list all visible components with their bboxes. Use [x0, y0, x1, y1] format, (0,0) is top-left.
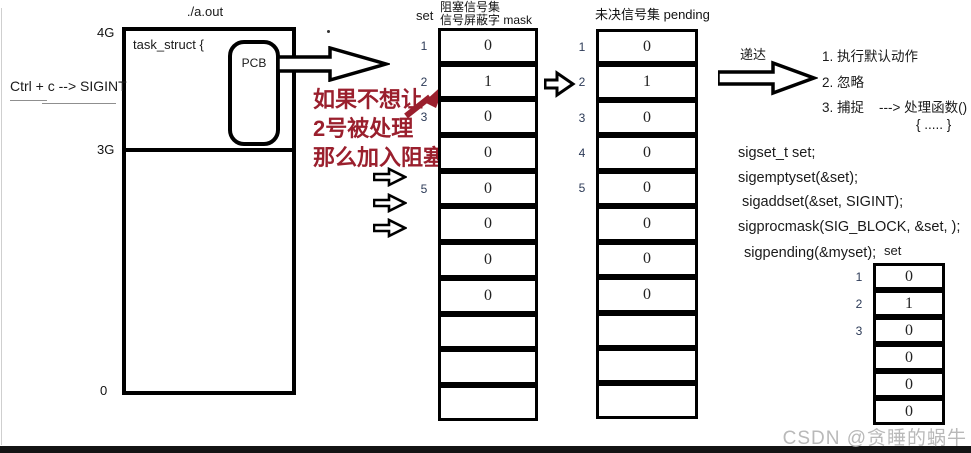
signal-source-note: Ctrl + c --> SIGINT — [10, 78, 127, 94]
signal-table-row: 10 — [845, 263, 945, 290]
page-border-line — [1, 8, 2, 445]
signal-table-row — [410, 314, 538, 350]
signal-table-row: 0 — [410, 278, 538, 314]
signal-bit-cell — [596, 383, 698, 418]
code-line-5: sigpending(&myset); — [744, 245, 876, 261]
signal-number-label — [410, 242, 438, 278]
signal-bit-cell: 0 — [438, 171, 538, 207]
signal-number-label — [410, 314, 438, 350]
underline-segment — [10, 100, 47, 101]
small-right-arrow-icon — [373, 193, 407, 213]
signal-number-label — [410, 385, 438, 421]
signal-table-row — [568, 348, 698, 383]
pending-signal-set-table: 1021304050000 — [568, 29, 698, 419]
signal-table-row: 0 — [568, 277, 698, 312]
signal-bit-cell — [438, 314, 538, 350]
signal-number-label — [845, 344, 873, 371]
signal-bit-cell: 0 — [438, 99, 538, 135]
signal-number-label — [410, 349, 438, 385]
signal-table-row: 0 — [845, 371, 945, 398]
mem-label-4g: 4G — [97, 25, 114, 40]
signal-table-row: 30 — [410, 99, 538, 135]
signal-table-row: 0 — [410, 206, 538, 242]
signal-bit-cell — [438, 385, 538, 421]
signal-table-row: 21 — [568, 64, 698, 99]
signal-number-label — [568, 206, 596, 241]
signal-bit-cell: 0 — [438, 242, 538, 278]
kernel-user-divider-line — [122, 148, 296, 152]
signal-number-label — [568, 277, 596, 312]
signal-bit-cell: 0 — [596, 29, 698, 64]
signal-number-label — [568, 242, 596, 277]
signal-bit-cell: 0 — [873, 317, 945, 344]
handler-body-text: { ..... } — [916, 117, 951, 132]
mask-set-label: set — [416, 8, 433, 23]
signal-bit-cell: 0 — [873, 344, 945, 371]
process-title: ./a.out — [150, 4, 260, 19]
signal-table-row — [410, 385, 538, 421]
pcb-to-mask-arrow-icon — [278, 46, 390, 82]
delivery-arrow-icon — [718, 60, 818, 96]
code-line-1: sigset_t set; — [738, 145, 815, 161]
signal-number-label: 4 — [568, 135, 596, 170]
code-line-3: sigaddset(&set, SIGINT); — [742, 194, 903, 210]
signal-table-row: 40 — [568, 135, 698, 170]
signal-table-row: 0 — [845, 344, 945, 371]
signal-bit-cell: 0 — [596, 206, 698, 241]
sigpending-result-table: 102130000 — [845, 263, 945, 425]
signal-number-label — [410, 278, 438, 314]
signal-number-label — [410, 135, 438, 171]
signal-bit-cell: 0 — [596, 242, 698, 277]
signal-number-label: 2 — [568, 64, 596, 99]
underline-segment — [42, 103, 116, 104]
signal-table-row — [568, 383, 698, 418]
signal-number-label — [568, 348, 596, 383]
signal-bit-cell: 0 — [596, 100, 698, 135]
mem-label-0: 0 — [100, 383, 107, 398]
signal-table-row: 30 — [845, 317, 945, 344]
signal-bit-cell: 1 — [596, 64, 698, 99]
signal-bit-cell: 1 — [438, 64, 538, 100]
mask-title-line2: 信号屏蔽字 mask — [440, 14, 532, 27]
signal-bit-cell: 0 — [596, 171, 698, 206]
signal-number-label — [410, 206, 438, 242]
signal-number-label — [845, 371, 873, 398]
signal-table-row — [568, 313, 698, 348]
signal-number-label — [568, 383, 596, 418]
signal-table-row: 30 — [568, 100, 698, 135]
signal-number-label: 1 — [568, 29, 596, 64]
signal-table-row: 21 — [845, 290, 945, 317]
code-line-4: sigprocmask(SIG_BLOCK, &set, ); — [738, 219, 960, 235]
signal-bit-cell: 0 — [596, 135, 698, 170]
signal-number-label: 2 — [845, 290, 873, 317]
small-right-arrow-icon — [373, 167, 407, 187]
signal-table-row: 0 — [410, 242, 538, 278]
delivery-item-2: 2. 忽略 — [822, 71, 864, 91]
watermark: CSDN @贪睡的蜗牛 — [783, 423, 967, 450]
signal-table-row: 50 — [568, 171, 698, 206]
signal-bit-cell: 0 — [438, 206, 538, 242]
signal-number-label: 3 — [845, 317, 873, 344]
handler-arrow-text: ---> 处理函数() — [879, 96, 967, 116]
signal-table-row: 21 — [410, 64, 538, 100]
signal-number-label: 2 — [410, 64, 438, 100]
small-right-arrow-icon — [373, 218, 407, 238]
signal-number-label: 3 — [410, 99, 438, 135]
signal-table-row: 10 — [568, 29, 698, 64]
signal-bit-cell — [596, 313, 698, 348]
signal-bit-cell — [438, 349, 538, 385]
blocked-signal-set-table: 102130050000 — [410, 28, 538, 421]
code-line-2: sigemptyset(&set); — [738, 170, 858, 186]
mem-label-3g: 3G — [97, 142, 114, 157]
delivery-item-3: 3. 捕捉 — [822, 96, 864, 116]
signal-bit-cell: 0 — [873, 398, 945, 425]
signal-bit-cell: 0 — [438, 28, 538, 64]
pcb-label: PCB — [242, 56, 267, 70]
signal-table-row: 10 — [410, 28, 538, 64]
signal-bit-cell: 0 — [438, 135, 538, 171]
signal-table-row: 0 — [845, 398, 945, 425]
signal-table-row: 0 — [568, 206, 698, 241]
signal-table-row — [410, 349, 538, 385]
task-struct-label: task_struct { — [133, 37, 204, 52]
signal-number-label: 1 — [845, 263, 873, 290]
signal-bit-cell: 1 — [873, 290, 945, 317]
signal-bit-cell: 0 — [873, 263, 945, 290]
signal-bit-cell: 0 — [438, 278, 538, 314]
signal-bit-cell: 0 — [596, 277, 698, 312]
signal-number-label: 5 — [410, 171, 438, 207]
pending-title: 未决信号集 pending — [595, 8, 710, 21]
signal-bit-cell: 0 — [873, 371, 945, 398]
signal-table-row: 50 — [410, 171, 538, 207]
signal-table-row: 0 — [568, 242, 698, 277]
signal-bit-cell — [596, 348, 698, 383]
signal-table-row: 0 — [410, 135, 538, 171]
signal-number-label: 3 — [568, 100, 596, 135]
pcb-box: PCB — [228, 40, 280, 146]
signal-number-label — [568, 313, 596, 348]
ink-dot — [327, 30, 330, 33]
result-set-label: set — [884, 243, 901, 258]
signal-number-label: 5 — [568, 171, 596, 206]
delivery-item-1: 1. 执行默认动作 — [822, 45, 918, 65]
signal-number-label: 1 — [410, 28, 438, 64]
signal-number-label — [845, 398, 873, 425]
